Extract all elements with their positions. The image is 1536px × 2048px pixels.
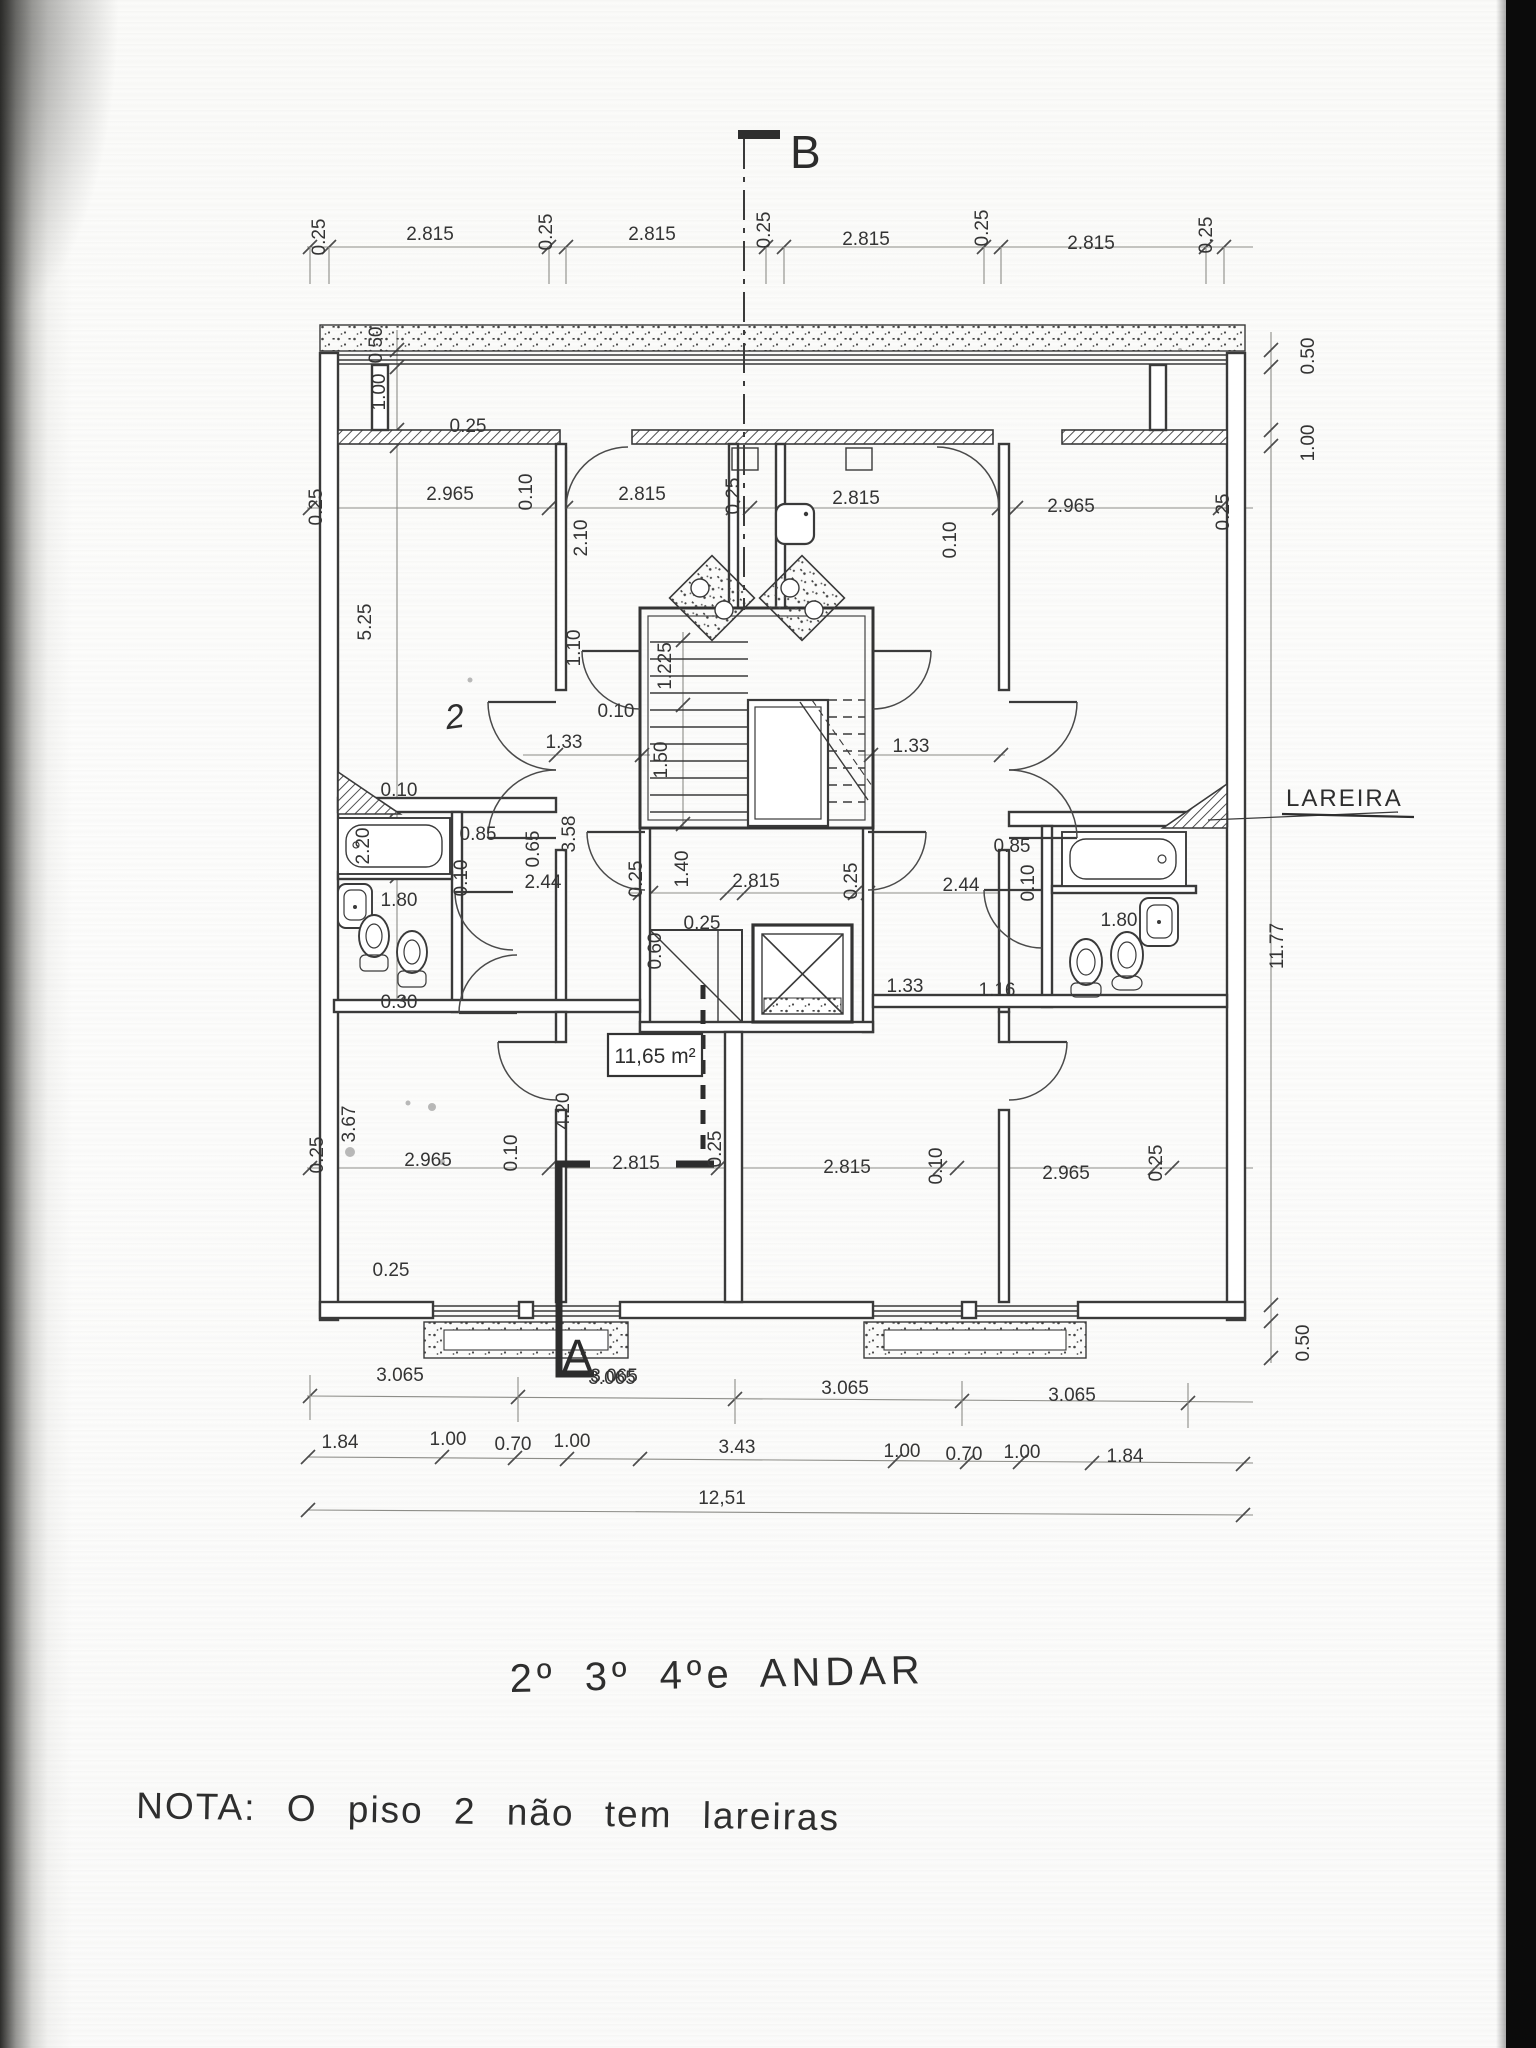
bottom-exterior-wall <box>320 1302 433 1318</box>
dimension-label: 0.25 <box>306 489 327 526</box>
dimension-label: 2.815 <box>842 229 890 250</box>
dimension-label: 0.50 <box>366 327 387 364</box>
dimension-label: 0.25 <box>536 214 557 251</box>
kitchen-sink <box>776 504 814 544</box>
dimension-label: 0.10 <box>516 474 537 511</box>
dimension-label: 1.00 <box>1298 425 1319 462</box>
dimension-label: 0.10 <box>940 522 961 559</box>
dimension-label: 0.85 <box>994 836 1031 857</box>
dimension-label: 3.065 <box>821 1378 869 1399</box>
dimension-label: 0.10 <box>598 701 635 722</box>
dimension-label: 2.815 <box>1067 233 1115 254</box>
party-wall <box>725 1032 742 1302</box>
dimension-label: 1.80 <box>381 890 418 911</box>
dimension-label: 0.10 <box>926 1148 947 1185</box>
dimension-label: 3.43 <box>719 1437 756 1458</box>
dimension-label: 0.50 <box>1293 1325 1314 1362</box>
dimension-label: 0.70 <box>495 1434 532 1455</box>
dimension-label: 0.25 <box>705 1131 726 1168</box>
dimension-label: 1.84 <box>322 1432 359 1453</box>
scan-edge-right <box>1506 0 1536 2048</box>
dimension-label: 0.25 <box>1146 1145 1167 1182</box>
dimension-label: 1.84 <box>1107 1446 1144 1467</box>
toilet-right-2 <box>1111 932 1143 978</box>
dimension-label: 0.25 <box>309 219 330 256</box>
dimension-label: 3.065 <box>590 1366 638 1387</box>
dimension-label: 1.16 <box>979 980 1016 1001</box>
dimension-label: 4.20 <box>553 1093 574 1130</box>
dimension-label: 1.00 <box>1004 1442 1041 1463</box>
dimension-label: 2.44 <box>525 872 562 893</box>
dimension-label: 2.815 <box>832 488 880 509</box>
fireplace-right <box>1163 784 1227 828</box>
dimension-label: 2.815 <box>823 1157 871 1178</box>
dimension-label: 1.80 <box>1101 910 1138 931</box>
dimension-label: 2.815 <box>628 224 676 245</box>
dimension-label: 2.965 <box>404 1150 452 1171</box>
dimension-label: 0.70 <box>946 1444 983 1465</box>
scan-edge-right-soft <box>1496 0 1506 2048</box>
section-marker-b: B <box>790 126 821 178</box>
dimension-label: 11.77 <box>1267 923 1288 969</box>
dimension-label: 2.965 <box>1047 496 1095 517</box>
dimension-label: 0.25 <box>307 1137 328 1174</box>
dimension-label: 0.10 <box>381 780 418 801</box>
dimension-label: 1.50 <box>651 742 672 779</box>
dimension-label: 0.25 <box>450 416 487 437</box>
toilet-left-1 <box>359 915 389 957</box>
dimension-label: 0.25 <box>1213 494 1234 531</box>
area-label: 11,65 m² <box>614 1045 695 1068</box>
dimension-label: 1.40 <box>672 851 693 888</box>
dimension-label: 1.10 <box>564 630 585 667</box>
dimension-label: 0.25 <box>626 861 647 898</box>
section-b-bar <box>738 130 780 139</box>
dimension-label: 2.965 <box>426 484 474 505</box>
dimension-label: 1.00 <box>884 1441 921 1462</box>
top-facade-wall <box>320 325 1245 351</box>
note-text: NOTA: O piso 2 não tem lareiras <box>136 1785 841 1838</box>
dimension-label: 0.50 <box>1298 338 1319 375</box>
dimension-label: 3.58 <box>559 816 580 853</box>
dimension-label: 0.85 <box>460 824 497 845</box>
floor-plan-drawing: B A LAREIRA 11,65 m² 2 0.252.8150.252.81… <box>0 0 1536 2048</box>
dimension-label: 0.25 <box>754 212 775 249</box>
dimension-label: 2.815 <box>618 484 666 505</box>
dimension-label: 1.33 <box>887 976 924 997</box>
dimension-label: 3.065 <box>376 1365 424 1386</box>
toilet-left-2 <box>397 931 427 973</box>
dimension-label: 2.20 <box>353 828 374 865</box>
dimension-label: 0.25 <box>1196 217 1217 254</box>
dimension-label: 1.00 <box>369 374 390 411</box>
dimension-label: 0.25 <box>684 913 721 934</box>
dimension-label: 0.25 <box>841 863 862 900</box>
dimension-label: 2.44 <box>943 875 980 896</box>
dimension-label: 0.10 <box>451 860 472 897</box>
dimension-label: 0.65 <box>523 831 544 868</box>
dimension-label: 1.225 <box>655 642 676 690</box>
toilet-right-1 <box>1070 939 1102 985</box>
handwritten-mark: 2 <box>442 697 467 737</box>
elevator <box>753 925 852 1022</box>
dimension-label: 1.33 <box>893 736 930 757</box>
dimension-label: 2.965 <box>1042 1163 1090 1184</box>
dimension-label: 0.10 <box>1018 865 1039 902</box>
dimension-label: 2.10 <box>571 520 592 557</box>
dimension-label: 0.25 <box>972 210 993 247</box>
dimension-label: 5.25 <box>355 604 376 641</box>
lareira-label: LAREIRA <box>1286 785 1403 812</box>
dimension-label: 3.065 <box>1048 1385 1096 1406</box>
dimension-label: 0.60 <box>645 933 666 970</box>
dimension-label: 1.33 <box>546 732 583 753</box>
dimension-label: 2.815 <box>732 871 780 892</box>
scan-corner-shadow <box>0 0 120 320</box>
dimension-label: 1.00 <box>430 1429 467 1450</box>
floor-title: 2º 3º 4ºe ANDAR <box>509 1648 925 1701</box>
dimension-label: 0.25 <box>723 478 744 515</box>
dimension-label: 0.30 <box>381 992 418 1013</box>
dimension-label: 12,51 <box>698 1488 746 1509</box>
staircase <box>640 608 873 828</box>
dimension-label: 3.67 <box>339 1106 360 1143</box>
dimension-label: 2.815 <box>612 1153 660 1174</box>
dimension-label: 1.00 <box>554 1431 591 1452</box>
dimension-label: 2.815 <box>406 224 454 245</box>
dimension-label: 0.10 <box>501 1135 522 1172</box>
kitchen-counters <box>670 448 872 640</box>
dimension-label: 0.25 <box>373 1260 410 1281</box>
